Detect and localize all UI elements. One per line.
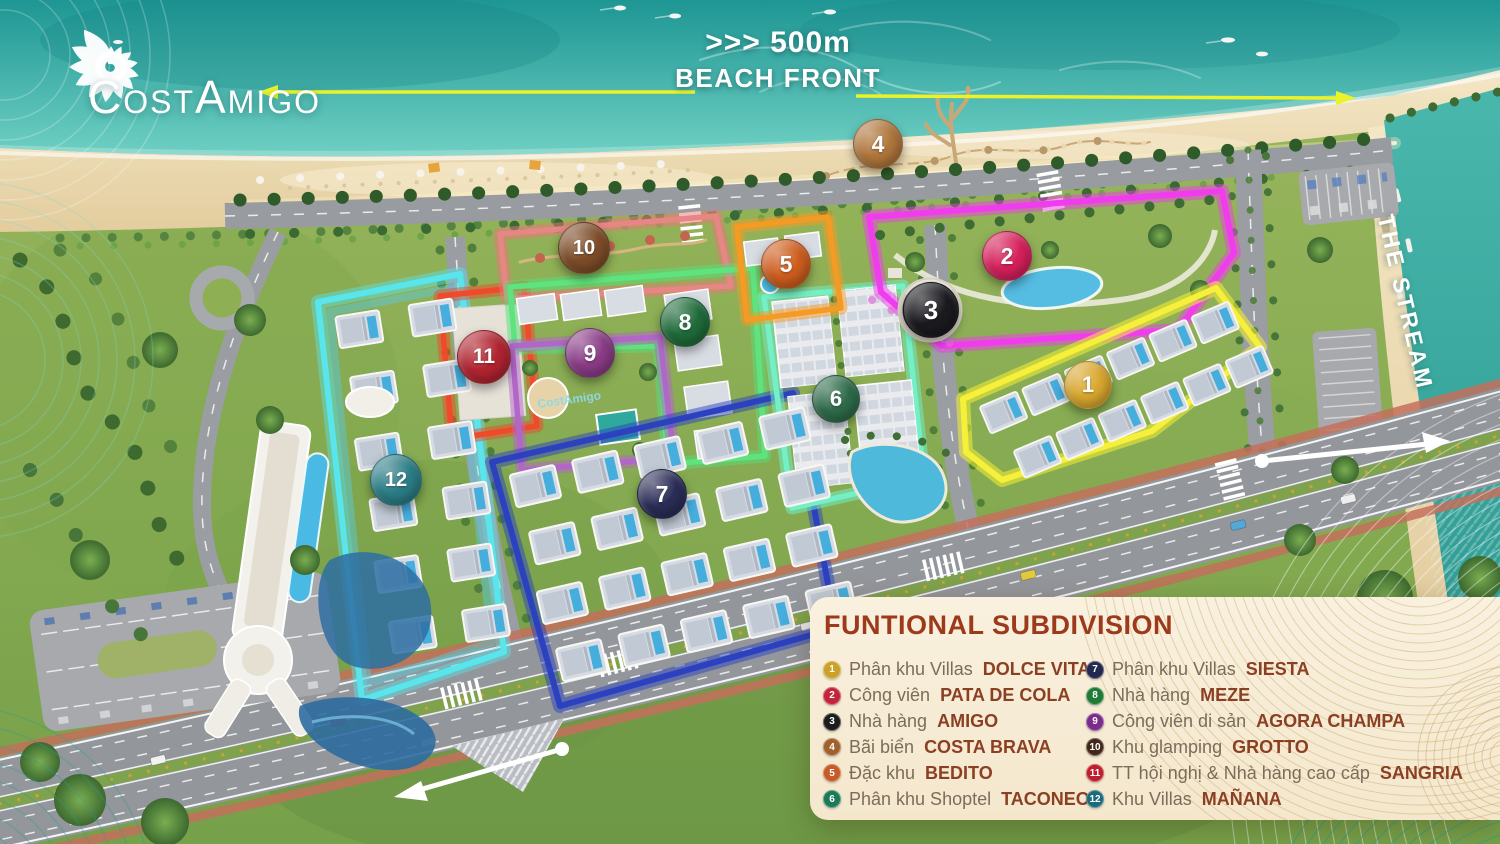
legend-item-badge: 4 bbox=[823, 738, 841, 756]
legend-item-name: MEZE bbox=[1200, 685, 1250, 705]
map-marker-10[interactable]: 10 bbox=[558, 222, 610, 274]
legend-item-9: 9Công viên di sản AGORA CHAMPA bbox=[1086, 709, 1494, 735]
legend-item-badge: 11 bbox=[1086, 764, 1104, 782]
legend-item-badge: 6 bbox=[823, 790, 841, 808]
legend-item-label: Phân khu Villas SIESTA bbox=[1112, 659, 1309, 680]
beach-front-label: BEACH FRONT bbox=[628, 63, 928, 94]
legend-item-badge: 10 bbox=[1086, 738, 1104, 756]
map-marker-1[interactable]: 1 bbox=[1064, 361, 1112, 409]
legend-item-7: 7Phân khu Villas SIESTA bbox=[1086, 657, 1494, 683]
legend-item-10: 10Khu glamping GROTTO bbox=[1086, 735, 1494, 761]
legend-item-label: Bãi biển COSTA BRAVA bbox=[849, 737, 1051, 758]
map-marker-11[interactable]: 11 bbox=[457, 330, 511, 384]
legend-title: FUNTIONAL SUBDIVISION bbox=[824, 610, 1173, 641]
legend-item-name: DOLCE VITA bbox=[983, 659, 1091, 679]
legend-item-name: AMIGO bbox=[937, 711, 998, 731]
legend-item-12: 12Khu Villas MAÑANA bbox=[1086, 786, 1494, 812]
brand-logo-text: CostAmigo bbox=[88, 70, 321, 124]
brand-logo: CostAmigo bbox=[48, 8, 468, 158]
legend-panel: FUNTIONAL SUBDIVISION 1Phân khu Villas D… bbox=[810, 597, 1500, 820]
legend-item-label: TT hội nghị & Nhà hàng cao cấp SANGRIA bbox=[1112, 763, 1463, 784]
legend-item-name: GROTTO bbox=[1232, 737, 1309, 757]
map-marker-12[interactable]: 12 bbox=[370, 454, 422, 506]
legend-item-4: 4Bãi biển COSTA BRAVA bbox=[823, 735, 1082, 761]
legend-item-badge: 1 bbox=[823, 661, 841, 679]
map-marker-6[interactable]: 6 bbox=[812, 375, 860, 423]
legend-item-2: 2Công viên PATA DE COLA bbox=[823, 683, 1082, 709]
legend-item-label: Phân khu Villas DOLCE VITA bbox=[849, 659, 1090, 680]
legend-item-6: 6Phân khu Shoptel TACONEO bbox=[823, 786, 1082, 812]
legend-item-badge: 12 bbox=[1086, 790, 1104, 808]
map-marker-5[interactable]: 5 bbox=[761, 239, 811, 289]
legend-item-label: Đặc khu BEDITO bbox=[849, 763, 993, 784]
legend-items: 1Phân khu Villas DOLCE VITA2Công viên PA… bbox=[823, 657, 1494, 812]
legend-item-badge: 5 bbox=[823, 764, 841, 782]
legend-item-label: Khu Villas MAÑANA bbox=[1112, 789, 1282, 810]
map-marker-2[interactable]: 2 bbox=[982, 231, 1032, 281]
legend-item-badge: 9 bbox=[1086, 713, 1104, 731]
legend-item-label: Khu glamping GROTTO bbox=[1112, 737, 1309, 758]
map-marker-9[interactable]: 9 bbox=[565, 328, 615, 378]
legend-item-8: 8Nhà hàng MEZE bbox=[1086, 683, 1494, 709]
legend-item-badge: 2 bbox=[823, 687, 841, 705]
legend-item-name: COSTA BRAVA bbox=[924, 737, 1051, 757]
legend-item-badge: 7 bbox=[1086, 661, 1104, 679]
legend-item-label: Nhà hàng AMIGO bbox=[849, 711, 998, 732]
legend-item-1: 1Phân khu Villas DOLCE VITA bbox=[823, 657, 1082, 683]
legend-item-name: MAÑANA bbox=[1202, 789, 1282, 809]
legend-item-label: Công viên di sản AGORA CHAMPA bbox=[1112, 711, 1405, 732]
legend-item-name: PATA DE COLA bbox=[940, 685, 1070, 705]
map-marker-4[interactable]: 4 bbox=[853, 119, 903, 169]
map-marker-7[interactable]: 7 bbox=[637, 469, 687, 519]
legend-item-label: Công viên PATA DE COLA bbox=[849, 685, 1070, 706]
legend-item-label: Nhà hàng MEZE bbox=[1112, 685, 1250, 706]
legend-item-label: Phân khu Shoptel TACONEO bbox=[849, 789, 1090, 810]
legend-item-5: 5Đặc khu BEDITO bbox=[823, 760, 1082, 786]
legend-item-name: TACONEO bbox=[1001, 789, 1090, 809]
legend-item-name: SANGRIA bbox=[1380, 763, 1463, 783]
legend-item-name: SIESTA bbox=[1246, 659, 1310, 679]
legend-item-badge: 3 bbox=[823, 713, 841, 731]
map-marker-3[interactable]: 3 bbox=[903, 282, 959, 338]
map-marker-8[interactable]: 8 bbox=[660, 297, 710, 347]
legend-item-name: AGORA CHAMPA bbox=[1256, 711, 1405, 731]
legend-item-name: BEDITO bbox=[925, 763, 993, 783]
legend-item-3: 3Nhà hàng AMIGO bbox=[823, 709, 1082, 735]
legend-item-11: 11TT hội nghị & Nhà hàng cao cấp SANGRIA bbox=[1086, 760, 1494, 786]
beach-front-annotation: >>> 500m BEACH FRONT bbox=[628, 26, 928, 94]
legend-item-badge: 8 bbox=[1086, 687, 1104, 705]
masterplan-map: CostAmigo bbox=[0, 0, 1500, 844]
distance-label: >>> 500m bbox=[628, 26, 928, 60]
